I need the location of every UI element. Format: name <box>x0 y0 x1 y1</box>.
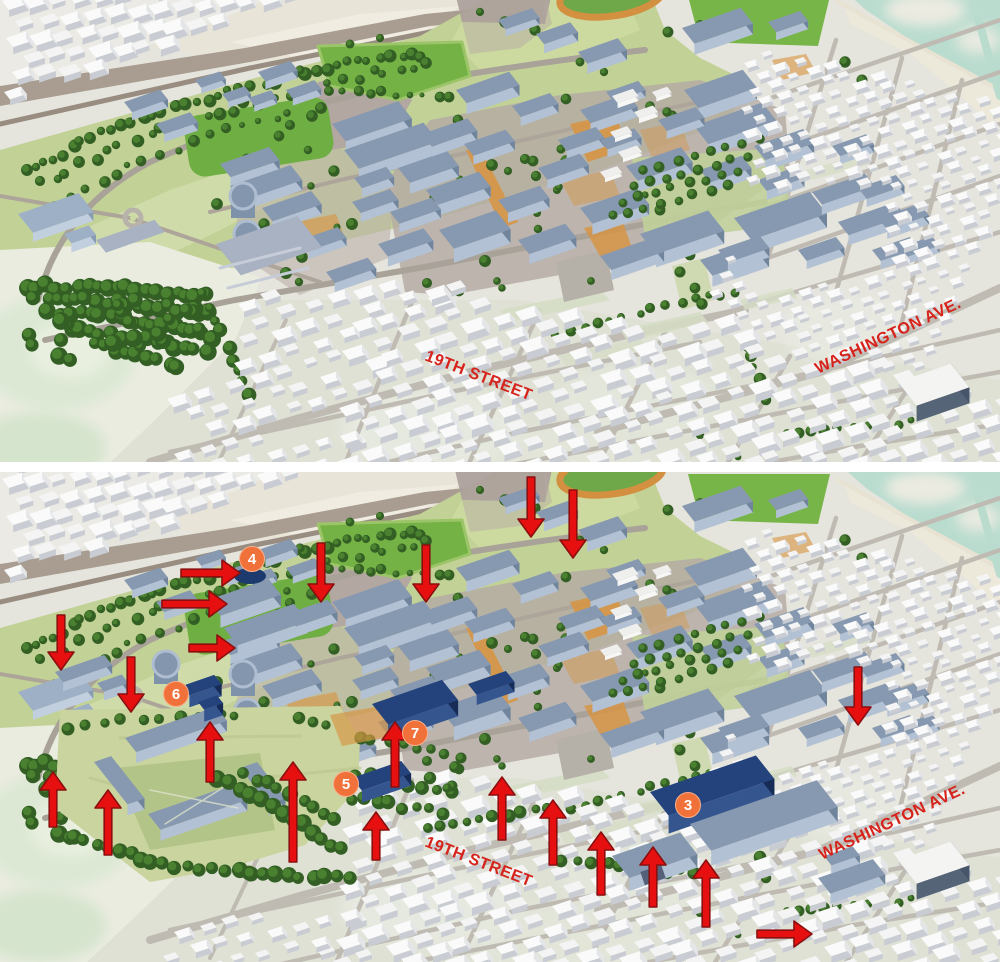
svg-text:7: 7 <box>411 725 419 742</box>
svg-text:3: 3 <box>684 797 692 814</box>
svg-text:4: 4 <box>248 551 257 568</box>
svg-text:6: 6 <box>172 686 180 703</box>
svg-text:5: 5 <box>342 776 350 793</box>
